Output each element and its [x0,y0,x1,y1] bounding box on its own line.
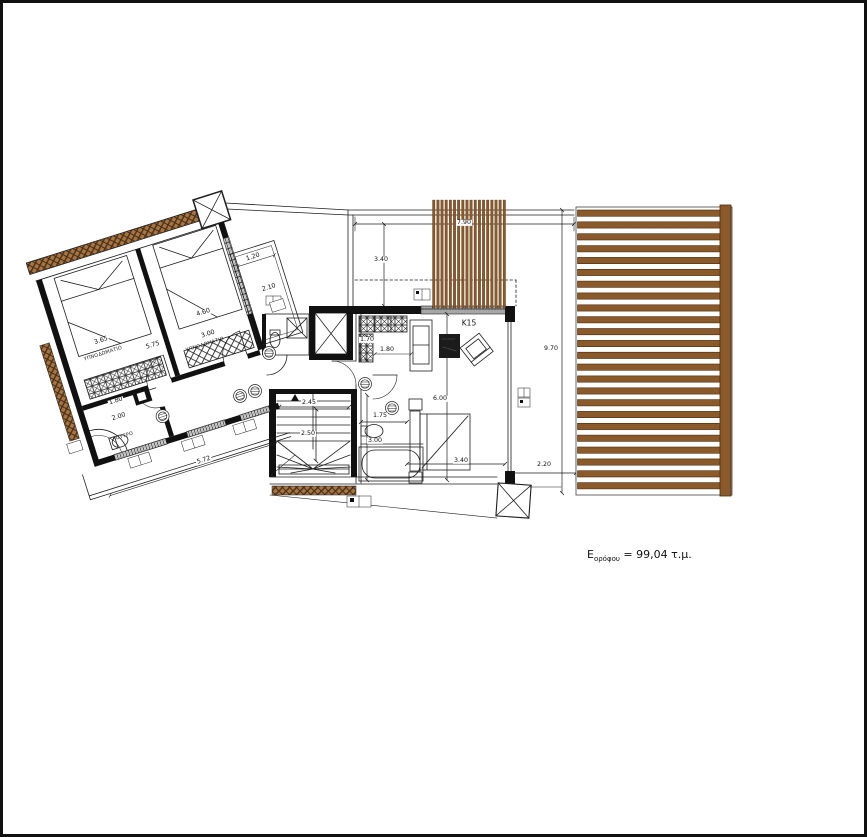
armchair [460,333,493,366]
bottom-balcony [270,455,561,518]
staircase [269,389,357,477]
bed [409,399,470,483]
wc-room [262,314,309,375]
coffee-table [439,334,460,358]
floor-plan-canvas: 7.90 3.40 9.70 K15 6.00 1.70 1.80 1.75 3… [0,0,867,837]
terrace-outline [225,203,574,308]
pergola-right [576,205,732,496]
elevator [309,306,353,360]
floor-plan-drawing [3,3,867,837]
bedroom-wing [8,180,332,503]
sofa [410,320,432,371]
pergola-top [433,200,506,308]
closet [359,316,411,362]
bathroom-fixtures [359,425,423,482]
glazed-wall [505,322,515,485]
